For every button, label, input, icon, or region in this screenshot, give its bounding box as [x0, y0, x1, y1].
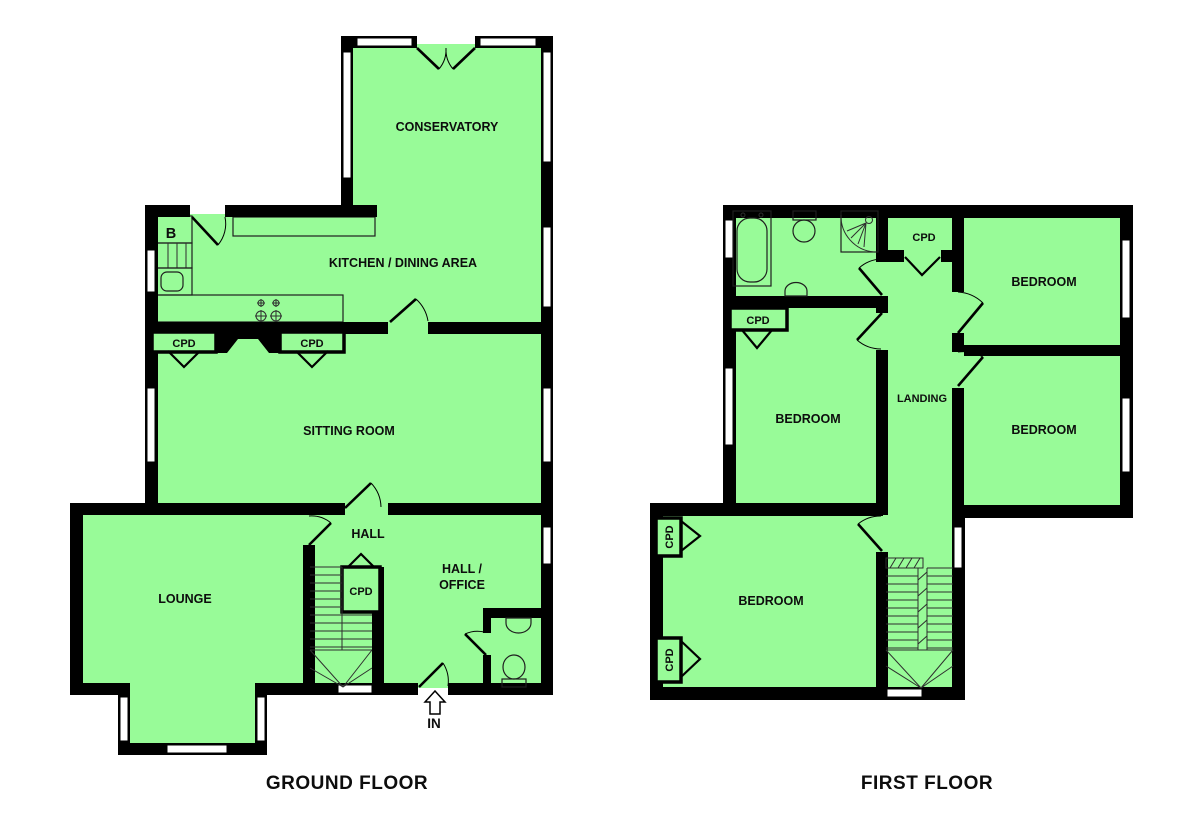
- floorplan-canvas: CONSERVATORY KITCHEN / DINING AREA SITTI…: [0, 0, 1200, 826]
- cupboard-label-bedroom-top: CPD: [664, 525, 676, 548]
- room-label-kitchen-dining: KITCHEN / DINING AREA: [329, 256, 477, 270]
- wall-bathroom-bottom: [723, 296, 888, 308]
- room-floor-lower-block: [657, 510, 958, 694]
- window-bay-bottom: [167, 745, 227, 753]
- room-label-hall-office-line1: HALL /: [442, 562, 483, 576]
- bay-window-floor: [128, 683, 258, 745]
- window-bay-left: [120, 697, 128, 741]
- window-conservatory-top-right: [480, 38, 536, 46]
- window-bedroom-left: [725, 368, 733, 445]
- room-label-bedroom-left: BEDROOM: [775, 412, 840, 426]
- wall-kitchen-top-right: [225, 205, 377, 217]
- wall-wc-left-lower: [483, 655, 491, 688]
- room-label-hall: HALL: [351, 527, 385, 541]
- wall-wc-left-upper: [483, 618, 491, 633]
- cupboard-label-sitting-right: CPD: [300, 338, 323, 350]
- wall-landing-left-seg4: [876, 552, 888, 687]
- cupboard-label-landing: CPD: [912, 232, 935, 244]
- ground-floor-plan: CONSERVATORY KITCHEN / DINING AREA SITTI…: [70, 36, 553, 755]
- wall-cpd-bottom-right: [941, 250, 964, 262]
- wall-ff-right-block-bottom: [952, 505, 1133, 518]
- window-bedroom-top-right: [1122, 240, 1130, 318]
- window-sitting-right: [543, 388, 551, 462]
- wall-lounge-stairs: [303, 545, 315, 687]
- window-conservatory-left: [343, 52, 351, 178]
- room-label-sitting-room: SITTING ROOM: [303, 424, 395, 438]
- entrance-arrow-icon: [425, 691, 445, 714]
- room-label-landing: LANDING: [897, 393, 947, 405]
- wall-kitchen-sitting-right: [428, 322, 541, 334]
- window-ff-bottom: [887, 689, 922, 697]
- room-label-bedroom-mid-right: BEDROOM: [1011, 423, 1076, 437]
- cupboard-label-bathroom: CPD: [746, 315, 769, 327]
- wall-bedrooms-divider: [964, 345, 1133, 356]
- window-bathroom-left: [725, 220, 733, 258]
- cupboard-label-bedroom-bottom: CPD: [664, 648, 676, 671]
- wall-cpd-bottom-left: [876, 250, 904, 262]
- room-label-lounge: LOUNGE: [158, 592, 211, 606]
- window-office-right: [543, 527, 551, 564]
- wall-hall-level-left: [70, 503, 345, 515]
- window-bay-right: [257, 697, 265, 741]
- cupboard-label-under-stairs: CPD: [349, 586, 372, 598]
- wall-ff-top: [723, 205, 1133, 218]
- window-stairwell-right: [954, 527, 962, 568]
- window-conservatory-right: [543, 52, 551, 162]
- wall-bottom-middle: [255, 683, 418, 695]
- cupboard-label-sitting-left: CPD: [172, 338, 195, 350]
- wall-landing-right-seg3: [952, 388, 964, 505]
- wall-ff-bottom-bedroom-top: [650, 503, 883, 516]
- room-label-conservatory: CONSERVATORY: [396, 120, 499, 134]
- room-label-hall-office-line2: OFFICE: [439, 578, 485, 592]
- wall-landing-right-seg2: [952, 333, 964, 352]
- window-sitting-left: [147, 388, 155, 462]
- room-floor-upper-block: [730, 212, 1126, 512]
- first-floor-title: FIRST FLOOR: [861, 773, 993, 794]
- wall-wc-top: [483, 608, 541, 618]
- first-floor-plan: BEDROOM BEDROOM BEDROOM BEDROOM LANDING …: [650, 205, 1133, 700]
- entrance-label: IN: [427, 716, 441, 731]
- window-kitchen-right: [543, 227, 551, 307]
- room-label-bedroom-bottom: BEDROOM: [738, 594, 803, 608]
- wall-bottom-right: [448, 683, 553, 695]
- wall-landing-left-seg3: [876, 350, 888, 515]
- window-kitchen-left: [147, 250, 155, 292]
- wall-hall-level-right: [388, 503, 541, 515]
- floorplan-page: CONSERVATORY KITCHEN / DINING AREA SITTI…: [0, 0, 1200, 826]
- ground-floor-title: GROUND FLOOR: [266, 773, 428, 794]
- wall-lounge-left: [70, 503, 83, 695]
- window-conservatory-top-left: [357, 38, 412, 46]
- window-bedroom-mid-right: [1122, 398, 1130, 472]
- room-label-bedroom-top-right: BEDROOM: [1011, 275, 1076, 289]
- boiler-label: B: [166, 226, 176, 242]
